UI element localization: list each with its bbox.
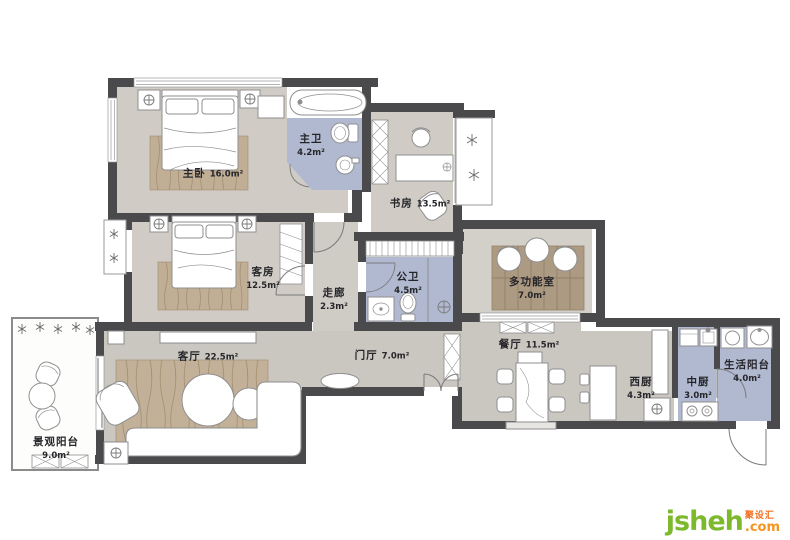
bathtub-icon [290, 90, 366, 115]
vanity-icon [368, 297, 394, 321]
room-label-guest-room: 客房12.5m² [246, 260, 280, 292]
room-label-master-bedroom: 主卧16.0m² [183, 162, 244, 183]
toilet-icon [400, 293, 416, 321]
entry-bench-icon [321, 374, 359, 389]
watermark-logo: jsheh 聚设汇 .com [666, 511, 780, 534]
shower-icon [438, 301, 450, 313]
kitchen-sink-icon [700, 328, 717, 346]
room-label-living-room: 客厅22.5m² [178, 345, 239, 366]
room-label-view-balcony: 景观阳台9.0m² [33, 430, 79, 462]
laundry-sink-icon [747, 326, 772, 348]
stove-icon [682, 402, 718, 421]
washer-icon [721, 328, 744, 348]
toilet-icon [331, 123, 358, 143]
room-label-study: 书房13.5m² [390, 192, 451, 213]
room-label-dining-room: 餐厅11.5m² [499, 333, 560, 354]
desk-icon [396, 155, 453, 181]
room-label-west-kitchen: 西厨4.3m² [627, 370, 655, 402]
fridge-icon [680, 329, 698, 346]
room-label-master-bath: 主卫4.2m² [297, 127, 325, 159]
room-label-multifunction-room: 多功能室7.0m² [509, 270, 555, 302]
room-label-public-bath: 公卫4.5m² [394, 265, 422, 297]
room-label-middle-kitchen: 中厨3.0m² [684, 370, 712, 402]
room-label-entry-hall: 门厅7.0m² [355, 344, 410, 365]
watermark-suffix-text: .com [745, 521, 780, 534]
room-label-utility-balcony: 生活阳台4.0m² [724, 353, 770, 385]
floor-plan-canvas: 主卧16.0m² 主卫4.2m² 书房13.5m² 客房12.5m² 走廊2.3… [0, 0, 790, 540]
side-table-icon [104, 442, 128, 464]
room-label-corridor: 走廊2.3m² [320, 281, 348, 313]
watermark-brand-text: jsheh [666, 511, 743, 534]
